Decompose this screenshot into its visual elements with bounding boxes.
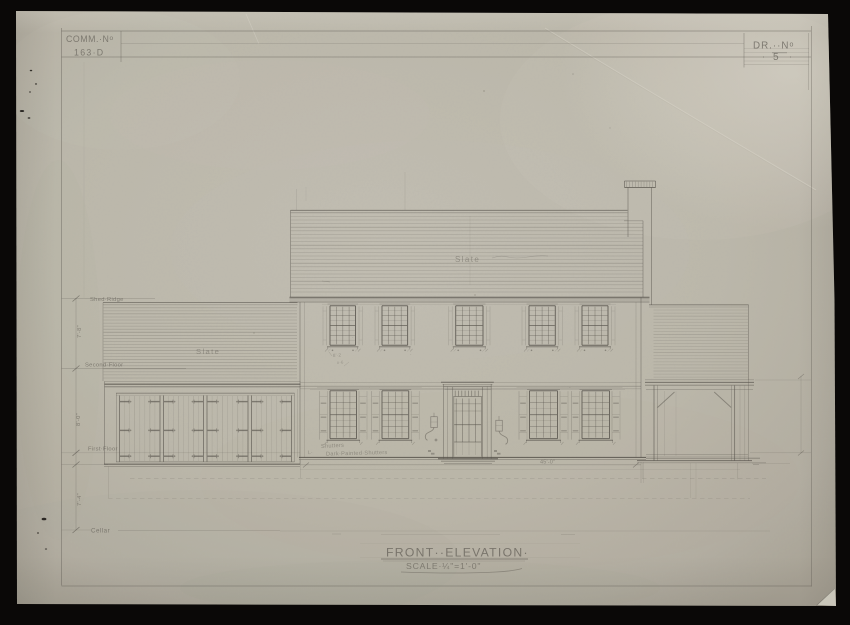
svg-text:163·D: 163·D [74,48,104,58]
svg-text:Slate: Slate [196,347,220,356]
svg-text:·: · [352,335,354,341]
svg-text:8'-0": 8'-0" [76,413,82,426]
svg-text:·: · [762,52,765,62]
svg-text:45'-0": 45'-0" [540,460,555,466]
svg-text:DR.··No: DR.··No [753,41,794,52]
svg-text:COMM.·No: COMM.·No [66,34,114,44]
svg-text:SCALE·¼"=1'-0": SCALE·¼"=1'-0" [406,561,481,571]
svg-text:Shed·Ridge: Shed·Ridge [90,297,124,303]
svg-text:5: 5 [773,52,779,63]
svg-text:·: · [789,52,792,62]
svg-text:FRONT··ELEVATION·: FRONT··ELEVATION· [386,546,529,560]
svg-text:Second·Floor: Second·Floor [85,363,123,369]
svg-text:7'-4": 7'-4" [77,493,83,506]
svg-text:Shutters: Shutters [321,443,345,450]
svg-text:Slate: Slate [455,255,480,264]
svg-text:First·Floor: First·Floor [88,447,118,453]
svg-text:·: · [410,352,412,358]
svg-text:8'·2: 8'·2 [333,352,342,358]
svg-text:Cellar: Cellar [91,528,110,535]
svg-text:x·6: x·6 [337,360,344,365]
svg-text:L·: L· [308,450,313,456]
svg-text:7'-8": 7'-8" [77,325,83,338]
